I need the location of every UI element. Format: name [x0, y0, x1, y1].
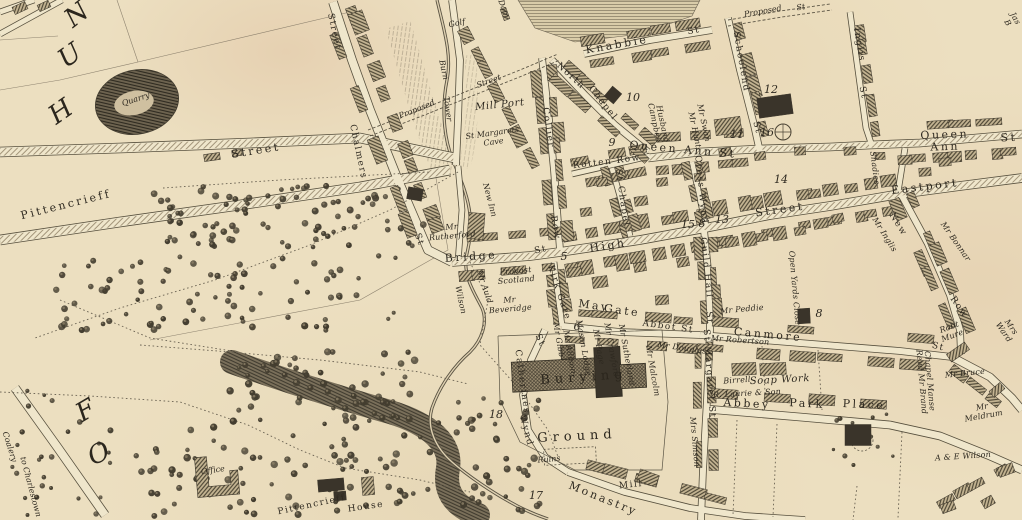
map-canvas — [0, 0, 1022, 520]
historical-town-plan[interactable]: NUHFOQuarryStreetPittencrieffChalmersStS… — [0, 0, 1022, 520]
